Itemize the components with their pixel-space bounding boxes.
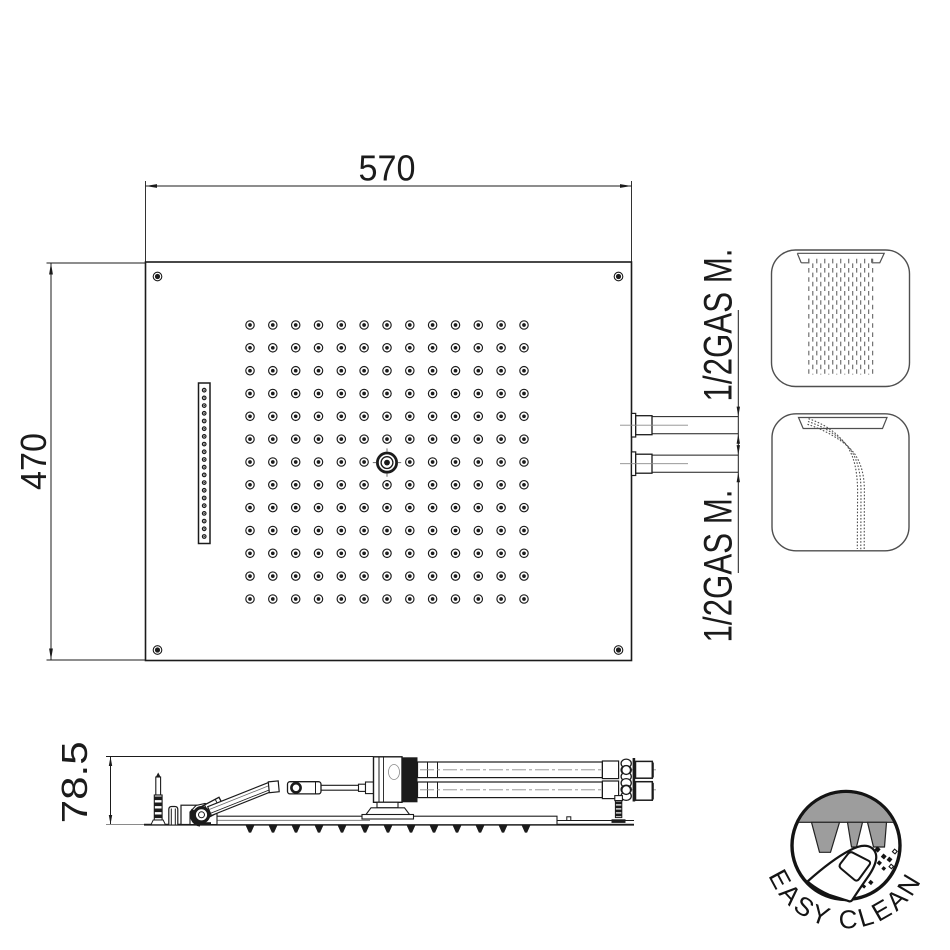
svg-text:78.5: 78.5 xyxy=(54,741,95,823)
svg-text:1/2GAS M.: 1/2GAS M. xyxy=(697,249,741,402)
svg-text:470: 470 xyxy=(13,433,54,490)
svg-text:570: 570 xyxy=(359,148,416,189)
svg-text:1/2GAS M.: 1/2GAS M. xyxy=(697,490,741,643)
